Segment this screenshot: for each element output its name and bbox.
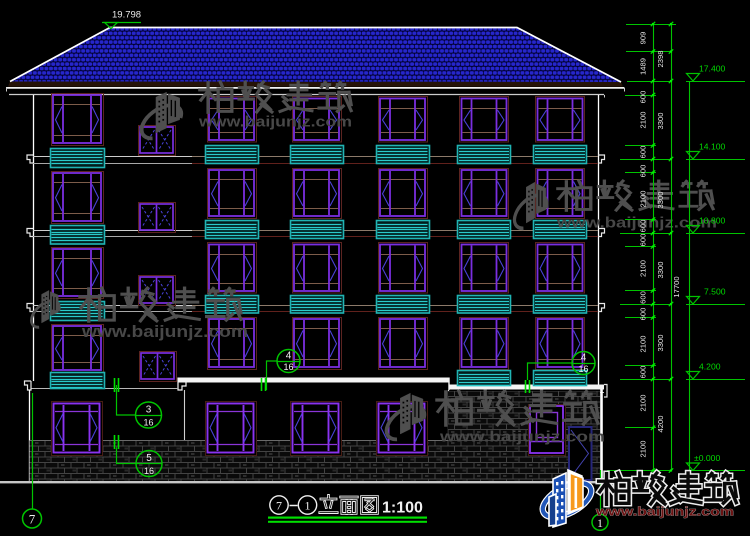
svg-text:17700: 17700 bbox=[672, 276, 681, 297]
svg-text:17.400: 17.400 bbox=[699, 64, 726, 74]
svg-text:3300: 3300 bbox=[656, 192, 665, 209]
svg-text:16: 16 bbox=[283, 362, 293, 372]
svg-text:2100: 2100 bbox=[639, 191, 648, 208]
svg-text:7: 7 bbox=[29, 512, 36, 527]
svg-text:4200: 4200 bbox=[656, 416, 665, 433]
svg-text:www.baijunjz.com: www.baijunjz.com bbox=[439, 430, 605, 446]
svg-text:±0.000: ±0.000 bbox=[694, 453, 720, 463]
svg-text:2100: 2100 bbox=[639, 260, 648, 277]
svg-text:2398: 2398 bbox=[656, 51, 665, 68]
svg-text:7.500: 7.500 bbox=[704, 287, 726, 297]
svg-text:14.100: 14.100 bbox=[699, 142, 726, 152]
svg-text:1: 1 bbox=[305, 499, 311, 513]
svg-text:7: 7 bbox=[276, 499, 282, 513]
svg-text:5: 5 bbox=[146, 453, 152, 464]
svg-text:600: 600 bbox=[639, 308, 648, 321]
svg-text:www.baijunjz.com: www.baijunjz.com bbox=[198, 115, 352, 131]
svg-text:19.798: 19.798 bbox=[112, 10, 141, 21]
svg-text:3300: 3300 bbox=[656, 113, 665, 130]
svg-text:10.800: 10.800 bbox=[699, 216, 726, 226]
svg-text:1:100: 1:100 bbox=[382, 500, 423, 517]
svg-text:16: 16 bbox=[143, 418, 153, 428]
svg-text:600: 600 bbox=[639, 366, 648, 379]
svg-text:16: 16 bbox=[578, 364, 588, 374]
svg-text:600: 600 bbox=[639, 291, 648, 304]
svg-text:600: 600 bbox=[639, 165, 648, 178]
svg-text:3300: 3300 bbox=[656, 262, 665, 279]
svg-text:4: 4 bbox=[581, 353, 587, 364]
svg-text:2100: 2100 bbox=[639, 112, 648, 129]
svg-text:4.200: 4.200 bbox=[699, 362, 721, 372]
svg-text:www.baijunjz.com: www.baijunjz.com bbox=[81, 322, 248, 341]
svg-text:3: 3 bbox=[146, 405, 152, 416]
svg-text:600: 600 bbox=[639, 91, 648, 104]
svg-text:4: 4 bbox=[286, 351, 292, 362]
svg-text:www.baijunjz.com: www.baijunjz.com bbox=[556, 216, 717, 232]
svg-text:600: 600 bbox=[639, 146, 648, 159]
svg-text:2100: 2100 bbox=[639, 441, 648, 458]
svg-text:2100: 2100 bbox=[639, 395, 648, 412]
svg-text:909: 909 bbox=[639, 32, 648, 45]
svg-text:600: 600 bbox=[639, 220, 648, 233]
svg-text:2100: 2100 bbox=[639, 336, 648, 353]
svg-text:3300: 3300 bbox=[656, 335, 665, 352]
svg-text:16: 16 bbox=[144, 466, 154, 476]
svg-text:600: 600 bbox=[639, 234, 648, 247]
svg-text:1489: 1489 bbox=[639, 58, 648, 75]
svg-text:www.baijunjz.com: www.baijunjz.com bbox=[595, 507, 734, 519]
